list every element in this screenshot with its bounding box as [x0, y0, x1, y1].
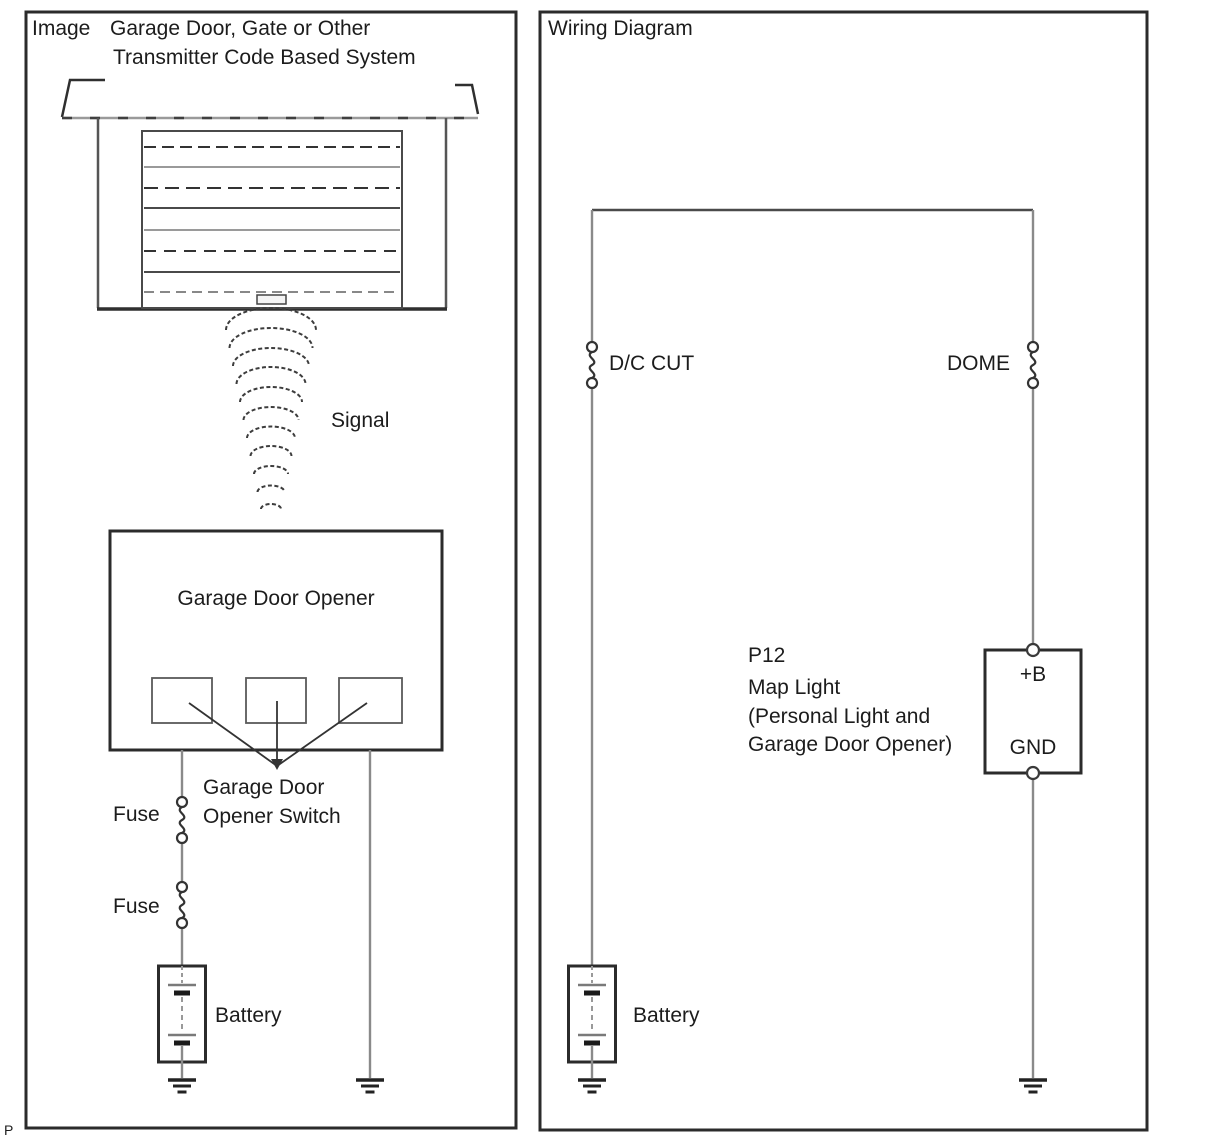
connector-desc-line2: Garage Door Opener) [748, 733, 952, 756]
garage-illustration [62, 80, 478, 309]
switch-label-line1: Garage Door [203, 776, 324, 799]
fuse-symbol-bottom [177, 882, 187, 928]
garage-door [142, 131, 402, 308]
terminal-label-power: +B [985, 663, 1081, 686]
ground-symbol [168, 1080, 196, 1092]
fuse-bottom-label: Fuse [113, 895, 160, 918]
ground-symbol [356, 1080, 384, 1092]
roof-right-edge [455, 85, 478, 114]
roof-left-edge [62, 80, 105, 117]
switch-pointer-arrowhead [271, 759, 283, 770]
terminal-circle-gnd [1027, 767, 1039, 779]
garage-door-opener-box [110, 531, 442, 770]
terminal-label-ground: GND [985, 736, 1081, 759]
connector-ref: P12 [748, 644, 785, 667]
switch-label-line2: Opener Switch [203, 805, 341, 828]
fuse-top-label: Fuse [113, 803, 160, 826]
signal-waves-icon [226, 308, 316, 509]
page-marker: P [4, 1122, 13, 1138]
fuse-symbol-dome [1028, 342, 1038, 388]
wiring-panel-title: Wiring Diagram [548, 17, 693, 40]
fuse-dc-cut-label: D/C CUT [609, 352, 694, 375]
battery-symbol-left [159, 966, 206, 1078]
fuse-dome-label: DOME [947, 352, 1010, 375]
connector-name: Map Light [748, 676, 840, 699]
battery-label-left: Battery [215, 1004, 282, 1027]
image-panel-label: Image [32, 17, 90, 40]
fuse-symbol-dc-cut [587, 342, 597, 388]
terminal-circle-b [1027, 644, 1039, 656]
service-manual-figure: Image Garage Door, Gate or Other Transmi… [0, 0, 1212, 1144]
fuse-symbol-top [177, 797, 187, 843]
image-title-line1: Garage Door, Gate or Other [110, 17, 370, 40]
door-handle [257, 295, 286, 304]
battery-symbol-right [569, 966, 616, 1078]
diagram-artwork [0, 0, 1212, 1144]
connector-desc-line1: (Personal Light and [748, 705, 930, 728]
ground-symbol [578, 1080, 606, 1092]
signal-label: Signal [331, 409, 389, 432]
battery-label-right: Battery [633, 1004, 700, 1027]
wiring-panel-border [540, 12, 1147, 1130]
opener-box-label: Garage Door Opener [110, 587, 442, 610]
ground-symbol [1019, 1080, 1047, 1092]
image-title-line2: Transmitter Code Based System [113, 46, 416, 69]
